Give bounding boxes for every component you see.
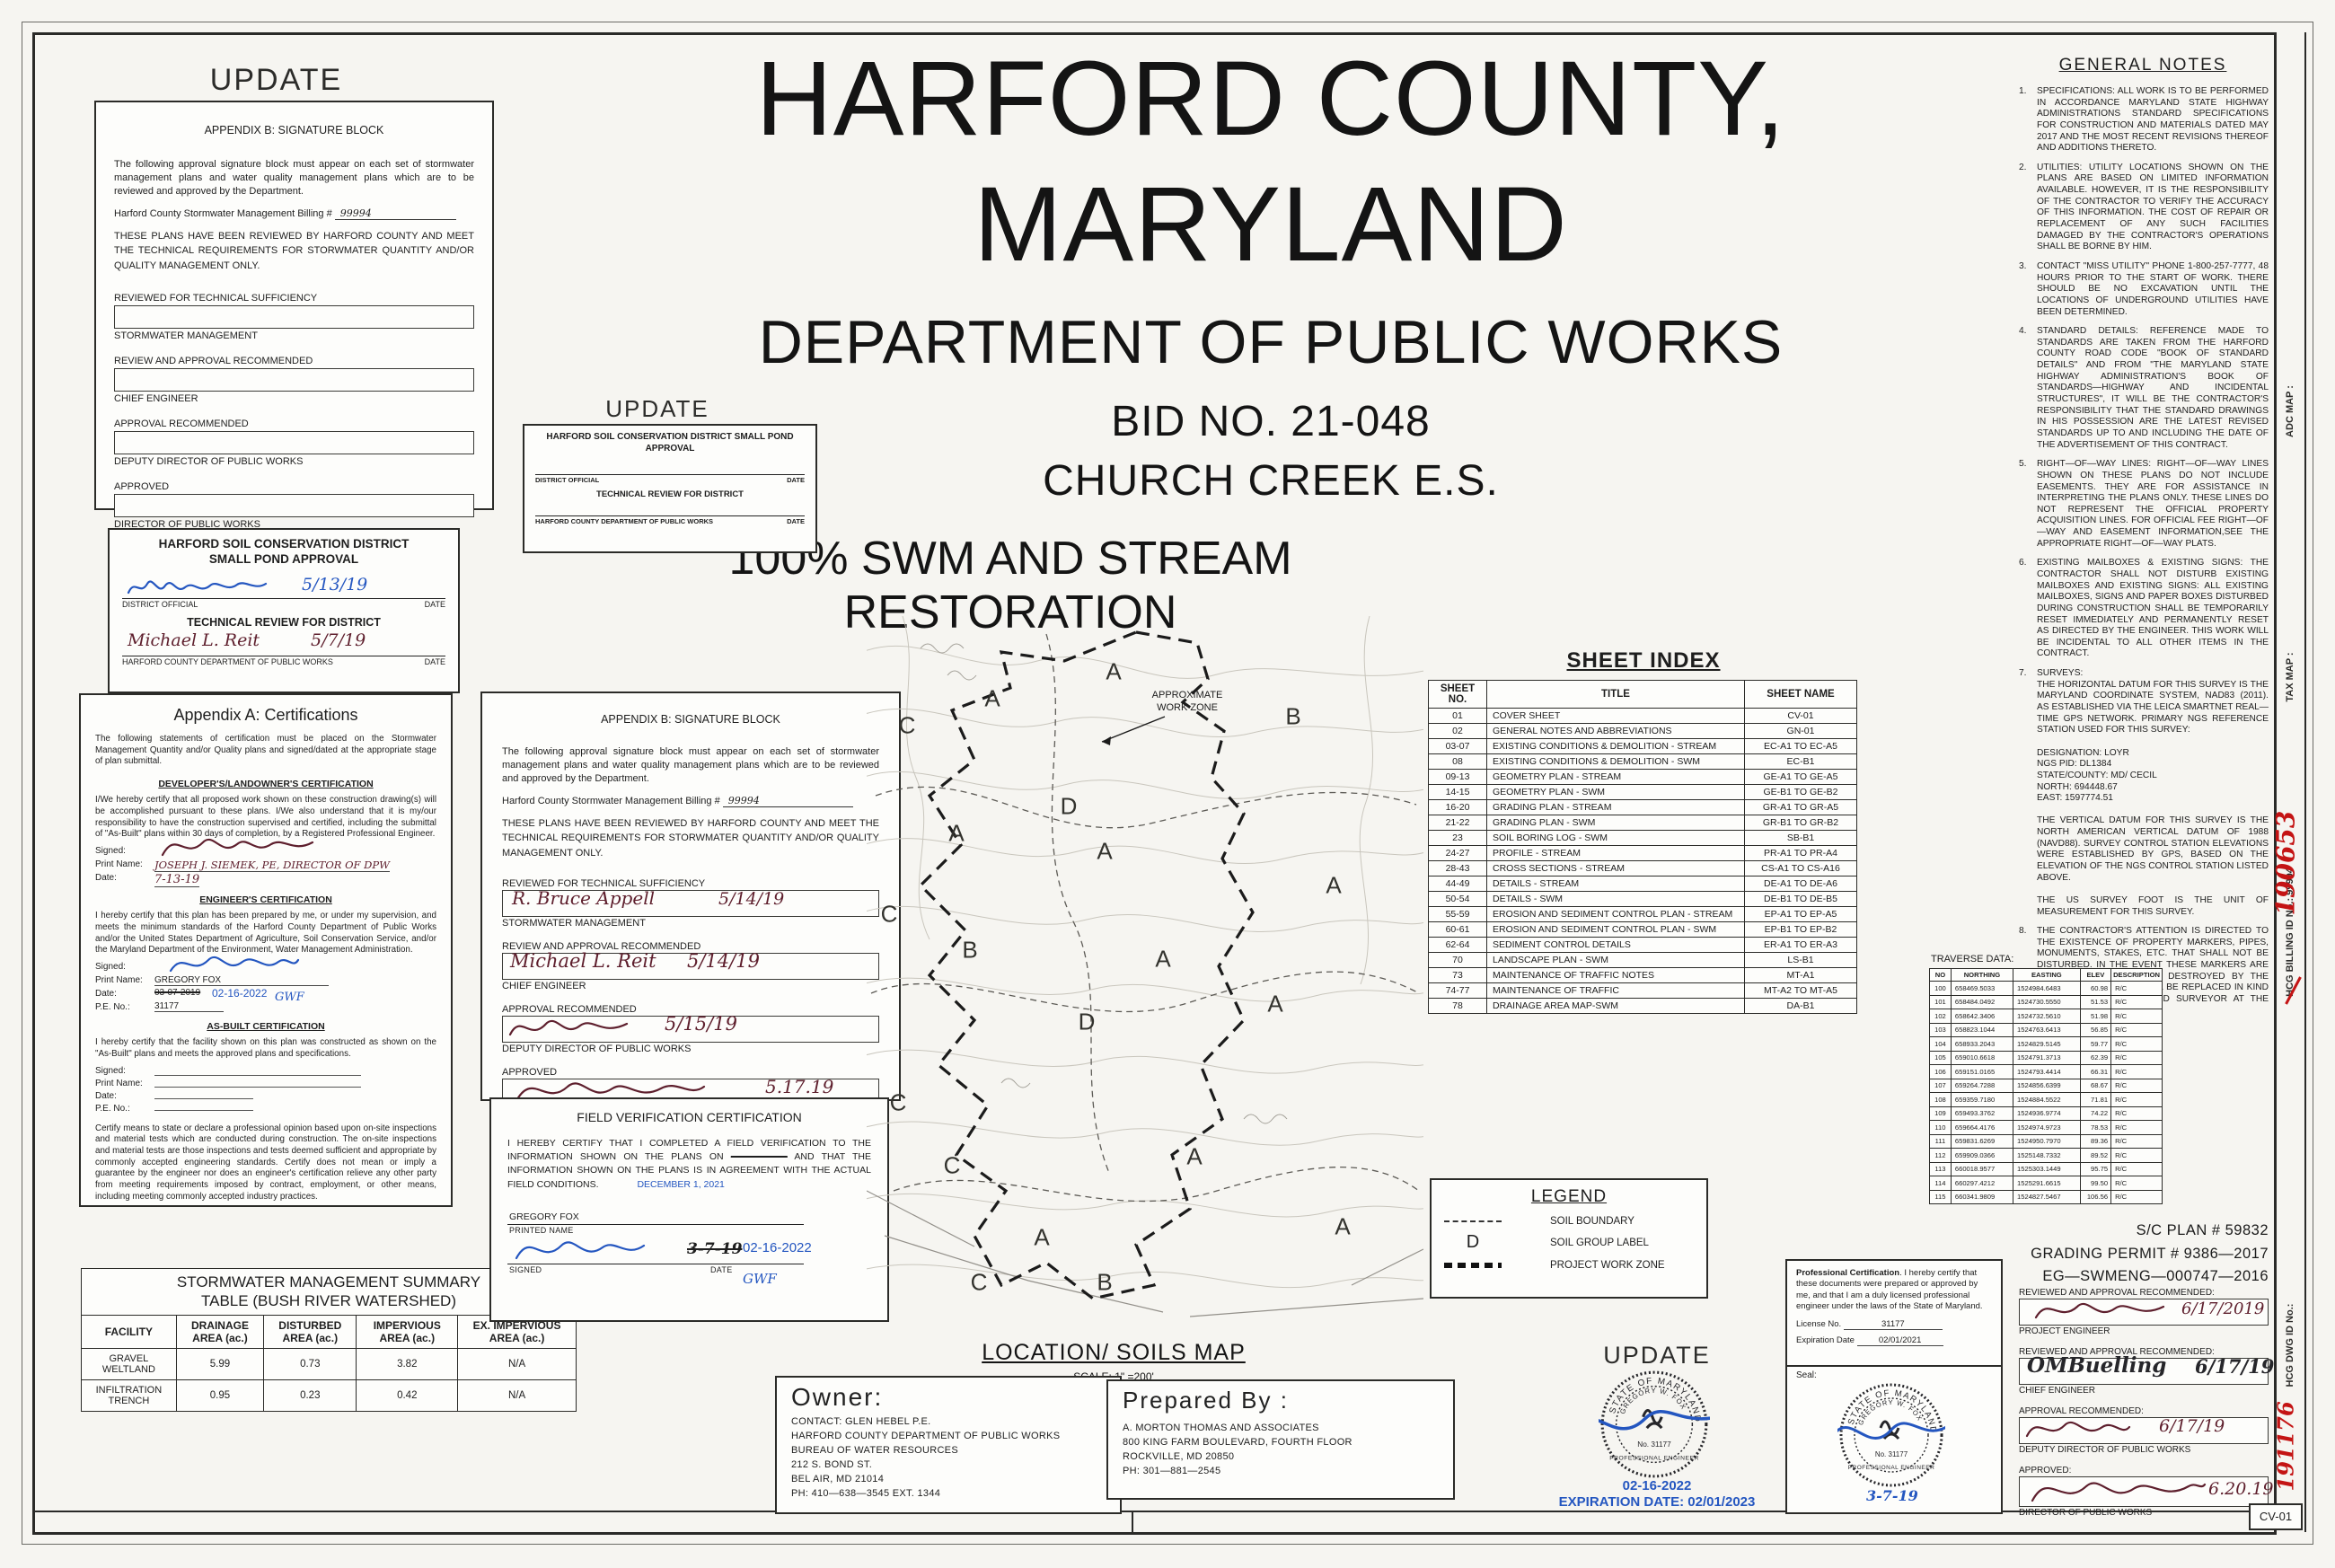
note-number: 6. (2019, 558, 2037, 660)
sheet-index-row: 78 DRAINAGE AREA MAP-SWM DA-B1 (1429, 999, 1857, 1014)
traverse-northing: 660018.9577 (1951, 1162, 2013, 1176)
expiration-label: Expiration Date (1796, 1335, 1855, 1345)
location-soils-map: APPROXIMATE WORK ZONE ACABDAACBADAACCAAC… (867, 616, 1423, 1335)
field-label: APPROVAL RECOMMENDED (114, 418, 474, 429)
fv-struck-date: —————— (731, 1151, 788, 1162)
svg-text:PROFESSIONAL ENGINEER: PROFESSIONAL ENGINEER (1609, 1455, 1699, 1461)
traverse-row: 102 658642.3406 1524732.5610 51.98 R/C (1930, 1009, 2163, 1024)
sheet-title: DETAILS - SWM (1487, 892, 1745, 907)
swm-col-facility: FACILITY (82, 1315, 177, 1348)
approval-date: 6.20.19 (2208, 1479, 2274, 1499)
fv-date-label: DATE (710, 1265, 733, 1274)
traverse-northing: 660341.9809 (1951, 1190, 2013, 1204)
approval-signature-line: OMBuelling 6/17/19 (2019, 1358, 2269, 1385)
prepared-by-line: ROCKVILLE, MD 20850 (1123, 1450, 1439, 1465)
engineer-print-name: GREGORY FOX (154, 975, 329, 986)
sheet-no: 21-22 (1429, 815, 1487, 831)
sheet-name: EC-A1 TO EC-A5 (1745, 739, 1857, 754)
traverse-elev: 95.75 (2080, 1162, 2110, 1176)
edge-billing-id-handwritten: 190653 (2271, 817, 2301, 916)
traverse-elev: 59.77 (2080, 1037, 2110, 1052)
soil-group-label: A (1326, 872, 1341, 900)
swm-col-drainage: DRAINAGE AREA (ac.) (176, 1315, 263, 1348)
traverse-no: 111 (1930, 1134, 1952, 1149)
sheet-name: DA-B1 (1745, 999, 1857, 1014)
traverse-northing: 660297.4212 (1951, 1176, 2013, 1191)
approval-label: REVIEWED AND APPROVAL RECOMMENDED: (2019, 1288, 2269, 1298)
traverse-description: R/C (2111, 1093, 2163, 1107)
sheet-name: DE-A1 TO DE-A6 (1745, 876, 1857, 892)
sheet-title: COVER SHEET (1487, 709, 1745, 724)
soil-group-label: A (1034, 1224, 1049, 1252)
note-text: CONTACT "MISS UTILITY" PHONE 1-800-257-7… (2037, 261, 2269, 318)
sheet-no: 23 (1429, 831, 1487, 846)
traverse-description: R/C (2111, 1162, 2163, 1176)
traverse-northing: 659264.7288 (1951, 1079, 2013, 1093)
traverse-easting: 1524763.6413 (2013, 1023, 2081, 1037)
professional-certification-box: Professional Certification. I hereby cer… (1785, 1259, 2003, 1514)
signature-line-signed: R. Bruce Appell 5/14/19 (502, 890, 879, 917)
hscd-blank-title: HARFORD SOIL CONSERVATION DISTRICT SMALL… (535, 431, 805, 454)
sheet-index-row: 08 EXISTING CONDITIONS & DEMOLITION - SW… (1429, 754, 1857, 770)
traverse-elev: 71.81 (2080, 1093, 2110, 1107)
grading-permit-number: GRADING PERMIT # 9386—2017 (2012, 1243, 2269, 1266)
signature-line-blank (114, 431, 474, 454)
eg-swmeng-number: EG—SWMENG—000747—2016 (2012, 1265, 2269, 1289)
note-text: EXISTING MAILBOXES & EXISTING SIGNS: THE… (2037, 558, 2269, 660)
approval-block: REVIEWED AND APPROVAL RECOMMENDED: 6/17/… (2019, 1288, 2269, 1336)
license-label: License No. (1796, 1319, 1841, 1329)
sheet-no: 16-20 (1429, 800, 1487, 815)
signature-line-signed: 5/15/19 (502, 1016, 879, 1043)
approval-signature-line: 6.20.19 (2019, 1476, 2269, 1507)
traverse-row: 101 658484.0492 1524730.5550 51.53 R/C (1930, 995, 2163, 1009)
deputy-director-signature (507, 1017, 632, 1040)
traverse-no: 103 (1930, 1023, 1952, 1037)
fv-sign-line (507, 1264, 804, 1264)
soil-group-label: C (899, 712, 916, 740)
traverse-elev: 89.36 (2080, 1134, 2110, 1149)
swm-table-row: INFILTRATION TRENCH 0.95 0.23 0.42 N/A (82, 1379, 577, 1411)
date-label: DATE (425, 657, 445, 666)
traverse-no: 106 (1930, 1065, 1952, 1079)
traverse-elev: 62.39 (2080, 1051, 2110, 1065)
owner-line: BEL AIR, MD 21014 (791, 1473, 1106, 1487)
legend-box: LEGEND SOIL BOUNDARY D SOIL GROUP LABEL … (1430, 1178, 1708, 1299)
sheet-name: GR-A1 TO GR-A5 (1745, 800, 1857, 815)
expiration-row: Expiration Date 02/01/2021 (1796, 1335, 1992, 1346)
traverse-elev: 74.22 (2080, 1106, 2110, 1121)
traverse-data-table: NO NORTHING EASTING ELEV DESCRIPTION 100… (1929, 968, 2163, 1204)
sheet-no: 44-49 (1429, 876, 1487, 892)
appendix-a-box: Appendix A: Certifications The following… (79, 693, 453, 1207)
hscd-dept-label: HARFORD COUNTY DEPARTMENT OF PUBLIC WORK… (535, 517, 713, 525)
sheet-index-row: 23 SOIL BORING LOG - SWM SB-B1 (1429, 831, 1857, 846)
traverse-northing: 659831.6269 (1951, 1134, 2013, 1149)
note-number: 7. (2019, 668, 2037, 918)
director-signature (2027, 1477, 2207, 1506)
sheet-name: ER-A1 TO ER-A3 (1745, 938, 1857, 953)
hscd-approval-box: HARFORD SOIL CONSERVATION DISTRICT SMALL… (108, 528, 460, 693)
traverse-northing: 659151.0165 (1951, 1065, 2013, 1079)
general-note: 5. RIGHT—OF—WAY LINES: RIGHT—OF—WAY LINE… (2019, 459, 2269, 550)
traverse-elev: 78.53 (2080, 1121, 2110, 1135)
traverse-col-northing: NORTHING (1951, 969, 2013, 982)
approval-signature-line: 6/17/2019 (2019, 1299, 2269, 1326)
sc-plan-number: S/C PLAN # 59832 (2012, 1220, 2269, 1243)
traverse-northing: 658484.0492 (1951, 995, 2013, 1009)
deputy-director-signature (2023, 1418, 2131, 1441)
appendix-b-billing: Harford County Stormwater Management Bil… (502, 795, 879, 807)
sheet-index-row: 62-64 SEDIMENT CONTROL DETAILS ER-A1 TO … (1429, 938, 1857, 953)
map-caption-text: LOCATION/ SOILS MAP (982, 1340, 1246, 1365)
traverse-easting: 1525148.7332 (2013, 1149, 2081, 1163)
chief-engineer-signature: OMBuelling (2027, 1353, 2166, 1378)
approval-date: 6/17/19 (2195, 1355, 2274, 1378)
update-stamp-seal: STATE OF MARYLAND GREGORY W. FOX No. 311… (1599, 1369, 1710, 1480)
sheet-name: GE-A1 TO GE-A5 (1745, 770, 1857, 785)
sheet-index-row: 74-77 MAINTENANCE OF TRAFFIC MT-A2 TO MT… (1429, 983, 1857, 999)
soil-group-label: A (984, 685, 1000, 713)
traverse-description: R/C (2111, 1190, 2163, 1204)
blank-line (154, 1087, 361, 1088)
traverse-row: 113 660018.9577 1525303.1449 95.75 R/C (1930, 1162, 2163, 1176)
soil-group-label: A (1097, 838, 1112, 866)
blank-line (154, 1098, 253, 1099)
sheet-no: 09-13 (1429, 770, 1487, 785)
sheet-name: SB-B1 (1745, 831, 1857, 846)
soil-group-label: C (971, 1269, 988, 1297)
sheet-no: 62-64 (1429, 938, 1487, 953)
sheet-title: SEDIMENT CONTROL DETAILS (1487, 938, 1745, 953)
traverse-row: 111 659831.6269 1524950.7970 89.36 R/C (1930, 1134, 2163, 1149)
engineers-cert-body: I hereby certify that this plan has been… (95, 911, 436, 956)
sheet-index-row: 09-13 GEOMETRY PLAN - STREAM GE-A1 TO GE… (1429, 770, 1857, 785)
traverse-easting: 1524827.5467 (2013, 1190, 2081, 1204)
owner-line: BUREAU OF WATER RESOURCES (791, 1444, 1106, 1458)
owner-box: Owner: CONTACT: GLEN HEBEL P.E.HARFORD C… (775, 1376, 1122, 1514)
owner-line: PH: 410—638—3545 EXT. 1344 (791, 1487, 1106, 1502)
approval-label: APPROVED: (2019, 1466, 2269, 1476)
traverse-row: 108 659359.7180 1524884.5522 71.81 R/C (1930, 1093, 2163, 1107)
swm-drainage: 5.99 (176, 1348, 263, 1379)
note-text: SPECIFICATIONS: ALL WORK IS TO BE PERFOR… (2037, 86, 2269, 154)
traverse-row: 107 659264.7288 1524856.6399 68.67 R/C (1930, 1079, 2163, 1093)
traverse-easting: 1524936.9774 (2013, 1106, 2081, 1121)
work-zone-symbol (1444, 1263, 1502, 1268)
sheet-index-row: 28-43 CROSS SECTIONS - STREAM CS-A1 TO C… (1429, 861, 1857, 876)
hscd-title: HARFORD SOIL CONSERVATION DISTRICT SMALL… (122, 537, 445, 568)
sheet-no: 14-15 (1429, 785, 1487, 800)
traverse-easting: 1524732.5610 (2013, 1009, 2081, 1024)
sheet-title: DRAINAGE AREA MAP-SWM (1487, 999, 1745, 1014)
approval-label: APPROVAL RECOMMENDED: (2019, 1406, 2269, 1416)
field-verification-box: FIELD VERIFICATION CERTIFICATION I HEREB… (489, 1097, 889, 1322)
permit-numbers: S/C PLAN # 59832 GRADING PERMIT # 9386—2… (2012, 1220, 2269, 1289)
col-sheet-no: SHEET NO. (1429, 681, 1487, 709)
field-label: REVIEW AND APPROVAL RECOMMENDED (114, 356, 474, 366)
approval-role: PROJECT ENGINEER (2019, 1326, 2269, 1336)
engineer-initials: GWF (275, 991, 304, 1004)
page-title-department: DEPARTMENT OF PUBLIC WORKS (207, 307, 2335, 377)
engineer-seal: STATE OF MARYLAND GREGORY W. FOX No. 311… (1837, 1381, 1945, 1489)
traverse-northing: 658933.2043 (1951, 1037, 2013, 1052)
traverse-description: R/C (2111, 1121, 2163, 1135)
soil-group-label: C (881, 901, 898, 929)
appendix-b-blank-box: APPENDIX B: SIGNATURE BLOCK The followin… (94, 101, 494, 510)
sheet-name: CS-A1 TO CS-A16 (1745, 861, 1857, 876)
traverse-no: 113 (1930, 1162, 1952, 1176)
sheet-name: GE-B1 TO GE-B2 (1745, 785, 1857, 800)
fv-name-line (507, 1224, 804, 1225)
prepared-by-line: PH: 301—881—2545 (1123, 1465, 1439, 1479)
swm-facility: GRAVEL WELTLAND (82, 1348, 177, 1379)
traverse-no: 102 (1930, 1009, 1952, 1024)
note-number: 2. (2019, 163, 2037, 253)
sheet-no: 01 (1429, 709, 1487, 724)
signed-label: Signed: (95, 962, 436, 972)
license-row: License No. 31177 (1796, 1319, 1992, 1330)
update-label-center: UPDATE (523, 395, 792, 423)
billing-value: 99994 (335, 207, 384, 220)
asbuilt-cert-body: I hereby certify that the facility shown… (95, 1037, 436, 1060)
traverse-northing: 659010.6618 (1951, 1051, 2013, 1065)
traverse-no: 108 (1930, 1093, 1952, 1107)
traverse-easting: 1524950.7970 (2013, 1134, 2081, 1149)
swm-facility: INFILTRATION TRENCH (82, 1379, 177, 1411)
hscd-dept-label: HARFORD COUNTY DEPARTMENT OF PUBLIC WORK… (122, 657, 333, 666)
appendix-a-intro: The following statements of certificatio… (95, 734, 436, 768)
sheet-no: 50-54 (1429, 892, 1487, 907)
soil-group-label: A (1335, 1213, 1350, 1241)
prepared-by-details: A. MORTON THOMAS AND ASSOCIATES800 KING … (1123, 1422, 1439, 1479)
general-notes-title: GENERAL NOTES (2019, 56, 2267, 75)
sheet-no: 28-43 (1429, 861, 1487, 876)
sheet-name: PR-A1 TO PR-A4 (1745, 846, 1857, 861)
traverse-description: R/C (2111, 982, 2163, 996)
hscd-tech-label: TECHNICAL REVIEW FOR DISTRICT (535, 489, 805, 499)
field-role: STORMWATER MANAGEMENT (114, 330, 474, 341)
sheet-index-title: SHEET INDEX (1518, 648, 1769, 674)
cover-sheet: HARFORD COUNTY, MARYLAND DEPARTMENT OF P… (0, 0, 2335, 1568)
date-label: DATE (787, 517, 805, 525)
sheet-title: MAINTENANCE OF TRAFFIC (1487, 983, 1745, 999)
developer-date: 7-13-19 (154, 873, 199, 887)
traverse-row: 110 659664.4176 1524974.9723 78.53 R/C (1930, 1121, 2163, 1135)
general-notes-list: 1. SPECIFICATIONS: ALL WORK IS TO BE PER… (2019, 86, 2269, 1025)
signature-line-blank (114, 305, 474, 329)
traverse-northing: 659493.3762 (1951, 1106, 2013, 1121)
project-engineer-signature (2032, 1299, 2167, 1323)
general-note: 2. UTILITIES: UTILITY LOCATIONS SHOWN ON… (2019, 163, 2269, 253)
traverse-description: R/C (2111, 995, 2163, 1009)
soil-group-label: C (890, 1089, 907, 1117)
sheet-title: SOIL BORING LOG - SWM (1487, 831, 1745, 846)
approval-date: 6/17/2019 (2181, 1299, 2264, 1318)
swm-ex-impervious: N/A (458, 1348, 577, 1379)
approval-date: 6/17/19 (2159, 1416, 2225, 1436)
legend-item-label: SOIL BOUNDARY (1550, 1216, 1634, 1227)
sheet-name: MT-A1 (1745, 968, 1857, 983)
traverse-data-title: TRAVERSE DATA: (1931, 954, 2013, 965)
sheet-name: MT-A2 TO MT-A5 (1745, 983, 1857, 999)
traverse-description: R/C (2111, 1134, 2163, 1149)
traverse-no: 101 (1930, 995, 1952, 1009)
sheet-title: GRADING PLAN - STREAM (1487, 800, 1745, 815)
traverse-no: 110 (1930, 1121, 1952, 1135)
traverse-description: R/C (2111, 1037, 2163, 1052)
traverse-easting: 1524974.9723 (2013, 1121, 2081, 1135)
owner-line: 212 S. BOND ST. (791, 1458, 1106, 1473)
owner-heading: Owner: (791, 1383, 1106, 1412)
traverse-northing: 659909.0366 (1951, 1149, 2013, 1163)
traverse-elev: 89.52 (2080, 1149, 2110, 1163)
field-label: REVIEWED FOR TECHNICAL SUFFICIENCY (114, 293, 474, 304)
traverse-description: R/C (2111, 1079, 2163, 1093)
seal-date: 3-7-19 (1866, 1487, 1918, 1504)
general-note: 7. SURVEYS: THE HORIZONTAL DATUM FOR THI… (2019, 668, 2269, 918)
appendix-b-intro: The following approval signature block m… (502, 745, 879, 786)
page-title-state: MARYLAND (207, 163, 2335, 286)
edge-dwg-id-handwritten: 191176 (2273, 1402, 2299, 1492)
traverse-northing: 658823.1044 (1951, 1023, 2013, 1037)
sheet-index-row: 14-15 GEOMETRY PLAN - SWM GE-B1 TO GE-B2 (1429, 785, 1857, 800)
owner-line: CONTACT: GLEN HEBEL P.E. (791, 1415, 1106, 1430)
sheet-title: EXISTING CONDITIONS & DEMOLITION - STREA… (1487, 739, 1745, 754)
sheet-no: 70 (1429, 953, 1487, 968)
tech-review-signature: Michael L. Reit (128, 630, 260, 650)
field-label: APPROVED (114, 481, 474, 492)
sheet-index-row: 16-20 GRADING PLAN - STREAM GR-A1 TO GR-… (1429, 800, 1857, 815)
sheet-title: GEOMETRY PLAN - SWM (1487, 785, 1745, 800)
traverse-description: R/C (2111, 1149, 2163, 1163)
sheet-no: 03-07 (1429, 739, 1487, 754)
hscd-title-line2: SMALL POND APPROVAL (122, 552, 445, 568)
traverse-no: 104 (1930, 1037, 1952, 1052)
traverse-row: 100 658469.5033 1524984.6483 60.98 R/C (1930, 982, 2163, 996)
traverse-no: 100 (1930, 982, 1952, 996)
seal-label: Seal: (1796, 1370, 1992, 1380)
fv-printed-name: GREGORY FOX (509, 1211, 579, 1222)
soil-group-label: C (944, 1152, 961, 1180)
appendix-b-signed-box: APPENDIX B: SIGNATURE BLOCK The followin… (480, 692, 901, 1101)
note-number: 1. (2019, 86, 2037, 154)
edge-tax-map: TAX MAP : (2285, 637, 2295, 718)
sheet-index-row: 73 MAINTENANCE OF TRAFFIC NOTES MT-A1 (1429, 968, 1857, 983)
swm-col-impervious: IMPERVIOUS AREA (ac.) (357, 1315, 458, 1348)
note-text: UTILITIES: UTILITY LOCATIONS SHOWN ON TH… (2037, 163, 2269, 253)
date-label: Date: (95, 873, 436, 883)
traverse-northing: 658469.5033 (1951, 982, 2013, 996)
sheet-index-row: 03-07 EXISTING CONDITIONS & DEMOLITION -… (1429, 739, 1857, 754)
signed-label: Signed: (95, 846, 436, 856)
engineer-date-struck: 03-07-2019 (154, 988, 200, 998)
traverse-description: R/C (2111, 1065, 2163, 1079)
traverse-elev: 99.50 (2080, 1176, 2110, 1191)
soil-group-symbol: D (1444, 1232, 1502, 1253)
soil-group-label: A (1155, 946, 1170, 973)
traverse-row: 105 659010.6618 1524791.3713 62.39 R/C (1930, 1051, 2163, 1065)
swm-col-disturbed: DISTURBED AREA (ac.) (264, 1315, 357, 1348)
approval-role: CHIEF ENGINEER (2019, 1386, 2269, 1396)
traverse-row: 104 658933.2043 1524829.5145 59.77 R/C (1930, 1037, 2163, 1052)
traverse-no: 115 (1930, 1190, 1952, 1204)
developer-print-name: JOSEPH J. SIEMEK, PE, DIRECTOR OF DPW (154, 859, 390, 872)
appendix-b-title: APPENDIX B: SIGNATURE BLOCK (114, 124, 474, 137)
update-stamp-label: UPDATE (1527, 1342, 1787, 1370)
developers-cert-body: I/We hereby certify that all proposed wo… (95, 795, 436, 841)
sheet-name: EP-A1 TO EP-A5 (1745, 907, 1857, 922)
traverse-easting: 1524793.4414 (2013, 1065, 2081, 1079)
expiration-date: 02/01/2021 (1857, 1335, 1943, 1346)
sheet-name: GR-B1 TO GR-B2 (1745, 815, 1857, 831)
traverse-elev: 56.85 (2080, 1023, 2110, 1037)
appendix-b-title: APPENDIX B: SIGNATURE BLOCK (502, 713, 879, 726)
sheet-index-row: 44-49 DETAILS - STREAM DE-A1 TO DE-A6 (1429, 876, 1857, 892)
col-title: TITLE (1487, 681, 1745, 709)
traverse-description: R/C (2111, 1106, 2163, 1121)
sheet-name: EP-B1 TO EP-B2 (1745, 922, 1857, 938)
field-role: CHIEF ENGINEER (502, 981, 879, 991)
sheet-title: PROFILE - STREAM (1487, 846, 1745, 861)
soil-group-label: B (962, 937, 977, 965)
traverse-no: 109 (1930, 1106, 1952, 1121)
sheet-no: 24-27 (1429, 846, 1487, 861)
general-note: 6. EXISTING MAILBOXES & EXISTING SIGNS: … (2019, 558, 2269, 660)
prepared-by-box: Prepared By : A. MORTON THOMAS AND ASSOC… (1106, 1379, 1455, 1500)
sheet-no: 73 (1429, 968, 1487, 983)
appendix-b-statement: THESE PLANS HAVE BEEN REVIEWED BY HARFOR… (114, 229, 474, 274)
sheet-title: GEOMETRY PLAN - STREAM (1487, 770, 1745, 785)
edge-adc-map: ADC MAP : (2285, 371, 2295, 452)
sheet-index-row: 50-54 DETAILS - SWM DE-B1 TO DE-B5 (1429, 892, 1857, 907)
traverse-no: 112 (1930, 1149, 1952, 1163)
traverse-northing: 659359.7180 (1951, 1093, 2013, 1107)
soil-group-label: A (1186, 1143, 1202, 1171)
approval-role: DEPUTY DIRECTOR OF PUBLIC WORKS (2019, 1445, 2269, 1455)
traverse-row: 109 659493.3762 1524936.9774 74.22 R/C (1930, 1106, 2163, 1121)
update-label-topleft: UPDATE (94, 63, 458, 98)
approval-signature-line: 6/17/19 (2019, 1417, 2269, 1444)
traverse-description: R/C (2111, 1176, 2163, 1191)
traverse-col-description: DESCRIPTION (2111, 969, 2163, 982)
appendix-b-billing: Harford County Stormwater Management Bil… (114, 207, 474, 220)
svg-text:No. 31177: No. 31177 (1875, 1450, 1908, 1458)
signature-name: R. Bruce Appell (512, 887, 655, 909)
approval-block: APPROVAL RECOMMENDED: 6/17/19 DEPUTY DIR… (2019, 1406, 2269, 1455)
sheet-no: 74-77 (1429, 983, 1487, 999)
sheet-index-row: 60-61 EROSION AND SEDIMENT CONTROL PLAN … (1429, 922, 1857, 938)
fv-date-struck: 3-7-19 (687, 1240, 742, 1258)
traverse-col-easting: EASTING (2013, 969, 2081, 982)
soil-group-label: A (1267, 991, 1282, 1018)
sheet-no: 60-61 (1429, 922, 1487, 938)
fv-blue-date: DECEMBER 1, 2021 (637, 1179, 724, 1190)
traverse-description: R/C (2111, 1009, 2163, 1024)
prepared-by-line: 800 KING FARM BOULEVARD, FOURTH FLOOR (1123, 1436, 1439, 1450)
swm-impervious: 3.82 (357, 1348, 458, 1379)
legend-title: LEGEND (1531, 1187, 1607, 1206)
sheet-index-row: 70 LANDSCAPE PLAN - SWM LS-B1 (1429, 953, 1857, 968)
blank-line (154, 1075, 361, 1076)
sheet-name: GN-01 (1745, 724, 1857, 739)
district-official-signature (126, 577, 269, 598)
district-official-label: DISTRICT OFFICIAL (535, 476, 599, 484)
hscd-title-line1: HARFORD SOIL CONSERVATION DISTRICT (122, 537, 445, 552)
note-text: RIGHT—OF—WAY LINES: RIGHT—OF—WAY LINES S… (2037, 459, 2269, 550)
appendix-a-footer: Certify means to state or declare a prof… (95, 1123, 436, 1203)
swm-drainage: 0.95 (176, 1379, 263, 1411)
